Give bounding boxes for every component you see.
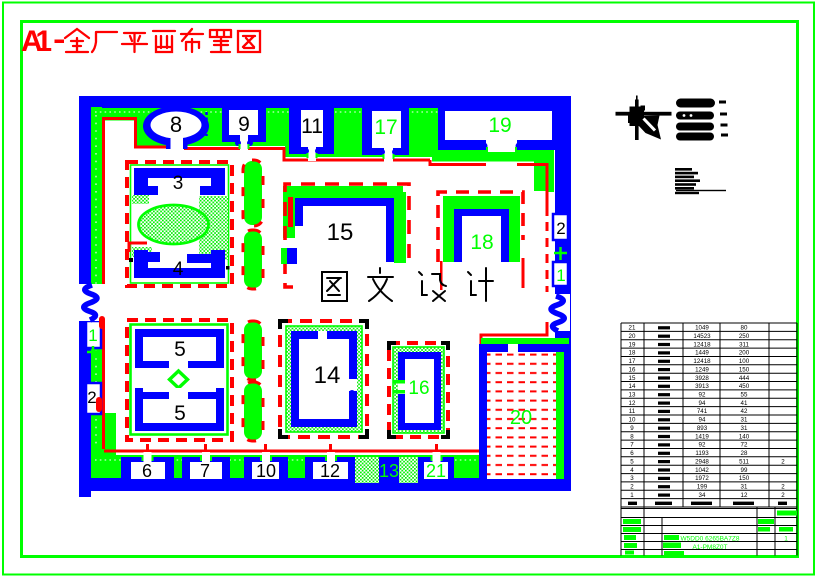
svg-text:16: 16 bbox=[408, 378, 429, 399]
svg-text:2: 2 bbox=[781, 458, 785, 465]
svg-text:250: 250 bbox=[739, 333, 750, 340]
svg-text:1419: 1419 bbox=[695, 433, 709, 440]
svg-text:5: 5 bbox=[630, 458, 634, 465]
svg-text:34: 34 bbox=[699, 492, 706, 499]
svg-text:311: 311 bbox=[739, 341, 749, 348]
svg-text:15: 15 bbox=[629, 375, 636, 382]
svg-text:11: 11 bbox=[301, 115, 323, 138]
svg-text:9: 9 bbox=[630, 425, 634, 432]
svg-text:31: 31 bbox=[741, 425, 748, 432]
svg-text:450: 450 bbox=[739, 383, 750, 390]
svg-text:2: 2 bbox=[556, 219, 565, 238]
svg-text:1049: 1049 bbox=[695, 325, 709, 332]
svg-text:10: 10 bbox=[629, 417, 636, 424]
svg-text:20: 20 bbox=[510, 407, 532, 429]
svg-text:72: 72 bbox=[741, 442, 748, 449]
svg-text:18: 18 bbox=[629, 350, 636, 357]
svg-text:1: 1 bbox=[630, 492, 634, 499]
svg-text:8: 8 bbox=[630, 433, 634, 440]
svg-text:80: 80 bbox=[741, 325, 748, 332]
svg-text:893: 893 bbox=[697, 425, 708, 432]
svg-text:200: 200 bbox=[739, 350, 750, 357]
svg-text:3: 3 bbox=[630, 475, 634, 482]
svg-text:6: 6 bbox=[630, 450, 634, 457]
svg-text:12418: 12418 bbox=[693, 358, 711, 365]
svg-text:14: 14 bbox=[314, 362, 341, 389]
svg-text:W5DD0 6265BA7Z8: W5DD0 6265BA7Z8 bbox=[681, 536, 740, 543]
svg-text:8: 8 bbox=[170, 112, 182, 137]
svg-text:14: 14 bbox=[629, 383, 636, 390]
svg-text:1972: 1972 bbox=[695, 475, 709, 482]
svg-text:16: 16 bbox=[629, 366, 636, 373]
svg-text:4: 4 bbox=[630, 467, 634, 474]
svg-text:100: 100 bbox=[739, 358, 750, 365]
svg-text:41: 41 bbox=[741, 400, 748, 407]
svg-text:17: 17 bbox=[629, 358, 636, 365]
svg-text:19: 19 bbox=[488, 114, 511, 137]
svg-text:A1: A1 bbox=[21, 25, 52, 58]
svg-text:92: 92 bbox=[699, 392, 706, 399]
svg-text:18: 18 bbox=[470, 231, 493, 254]
svg-text:444: 444 bbox=[739, 375, 750, 382]
svg-text:5: 5 bbox=[174, 402, 186, 425]
svg-text:1: 1 bbox=[556, 266, 565, 285]
svg-text:140: 140 bbox=[739, 433, 750, 440]
svg-text:19: 19 bbox=[629, 341, 636, 348]
svg-text:94: 94 bbox=[699, 400, 706, 407]
svg-text:12418: 12418 bbox=[693, 341, 711, 348]
svg-text:5: 5 bbox=[174, 338, 186, 361]
svg-text:A1-PM8Z0T: A1-PM8Z0T bbox=[692, 544, 727, 551]
svg-text:1042: 1042 bbox=[695, 467, 709, 474]
svg-text:7: 7 bbox=[630, 442, 634, 449]
svg-text:31: 31 bbox=[741, 484, 748, 491]
svg-text:2: 2 bbox=[781, 492, 785, 499]
svg-text:15: 15 bbox=[327, 219, 354, 246]
svg-text:199: 199 bbox=[697, 484, 708, 491]
svg-text:1: 1 bbox=[784, 536, 788, 543]
svg-text:28: 28 bbox=[741, 450, 748, 457]
svg-text:2948: 2948 bbox=[695, 458, 709, 465]
svg-text:20: 20 bbox=[629, 333, 636, 340]
svg-text:741: 741 bbox=[697, 408, 708, 415]
svg-text:31: 31 bbox=[741, 417, 748, 424]
svg-text:1449: 1449 bbox=[695, 350, 709, 357]
svg-text:14523: 14523 bbox=[693, 333, 711, 340]
svg-text:150: 150 bbox=[739, 366, 750, 373]
svg-text:12: 12 bbox=[741, 492, 748, 499]
svg-text:94: 94 bbox=[699, 417, 706, 424]
svg-text:13: 13 bbox=[379, 461, 399, 481]
svg-text:13: 13 bbox=[629, 392, 636, 399]
svg-text:511: 511 bbox=[739, 458, 749, 465]
svg-text:3: 3 bbox=[173, 173, 184, 194]
svg-text:9: 9 bbox=[238, 113, 250, 136]
svg-text:55: 55 bbox=[741, 392, 748, 399]
svg-text:2: 2 bbox=[781, 484, 785, 491]
svg-text:3928: 3928 bbox=[695, 375, 709, 382]
svg-text:2: 2 bbox=[87, 388, 96, 407]
svg-text:99: 99 bbox=[741, 467, 748, 474]
svg-text:92: 92 bbox=[699, 442, 706, 449]
svg-text:1193: 1193 bbox=[695, 450, 709, 457]
svg-text:42: 42 bbox=[741, 408, 748, 415]
svg-text:17: 17 bbox=[374, 116, 397, 139]
svg-text:150: 150 bbox=[739, 475, 750, 482]
svg-text:3913: 3913 bbox=[695, 383, 709, 390]
svg-text:11: 11 bbox=[629, 408, 636, 415]
svg-text:1: 1 bbox=[88, 326, 97, 345]
svg-text:2: 2 bbox=[630, 484, 634, 491]
svg-text:12: 12 bbox=[629, 400, 636, 407]
svg-text:21: 21 bbox=[629, 325, 636, 332]
svg-text:4: 4 bbox=[173, 259, 184, 280]
svg-text:1249: 1249 bbox=[695, 366, 709, 373]
